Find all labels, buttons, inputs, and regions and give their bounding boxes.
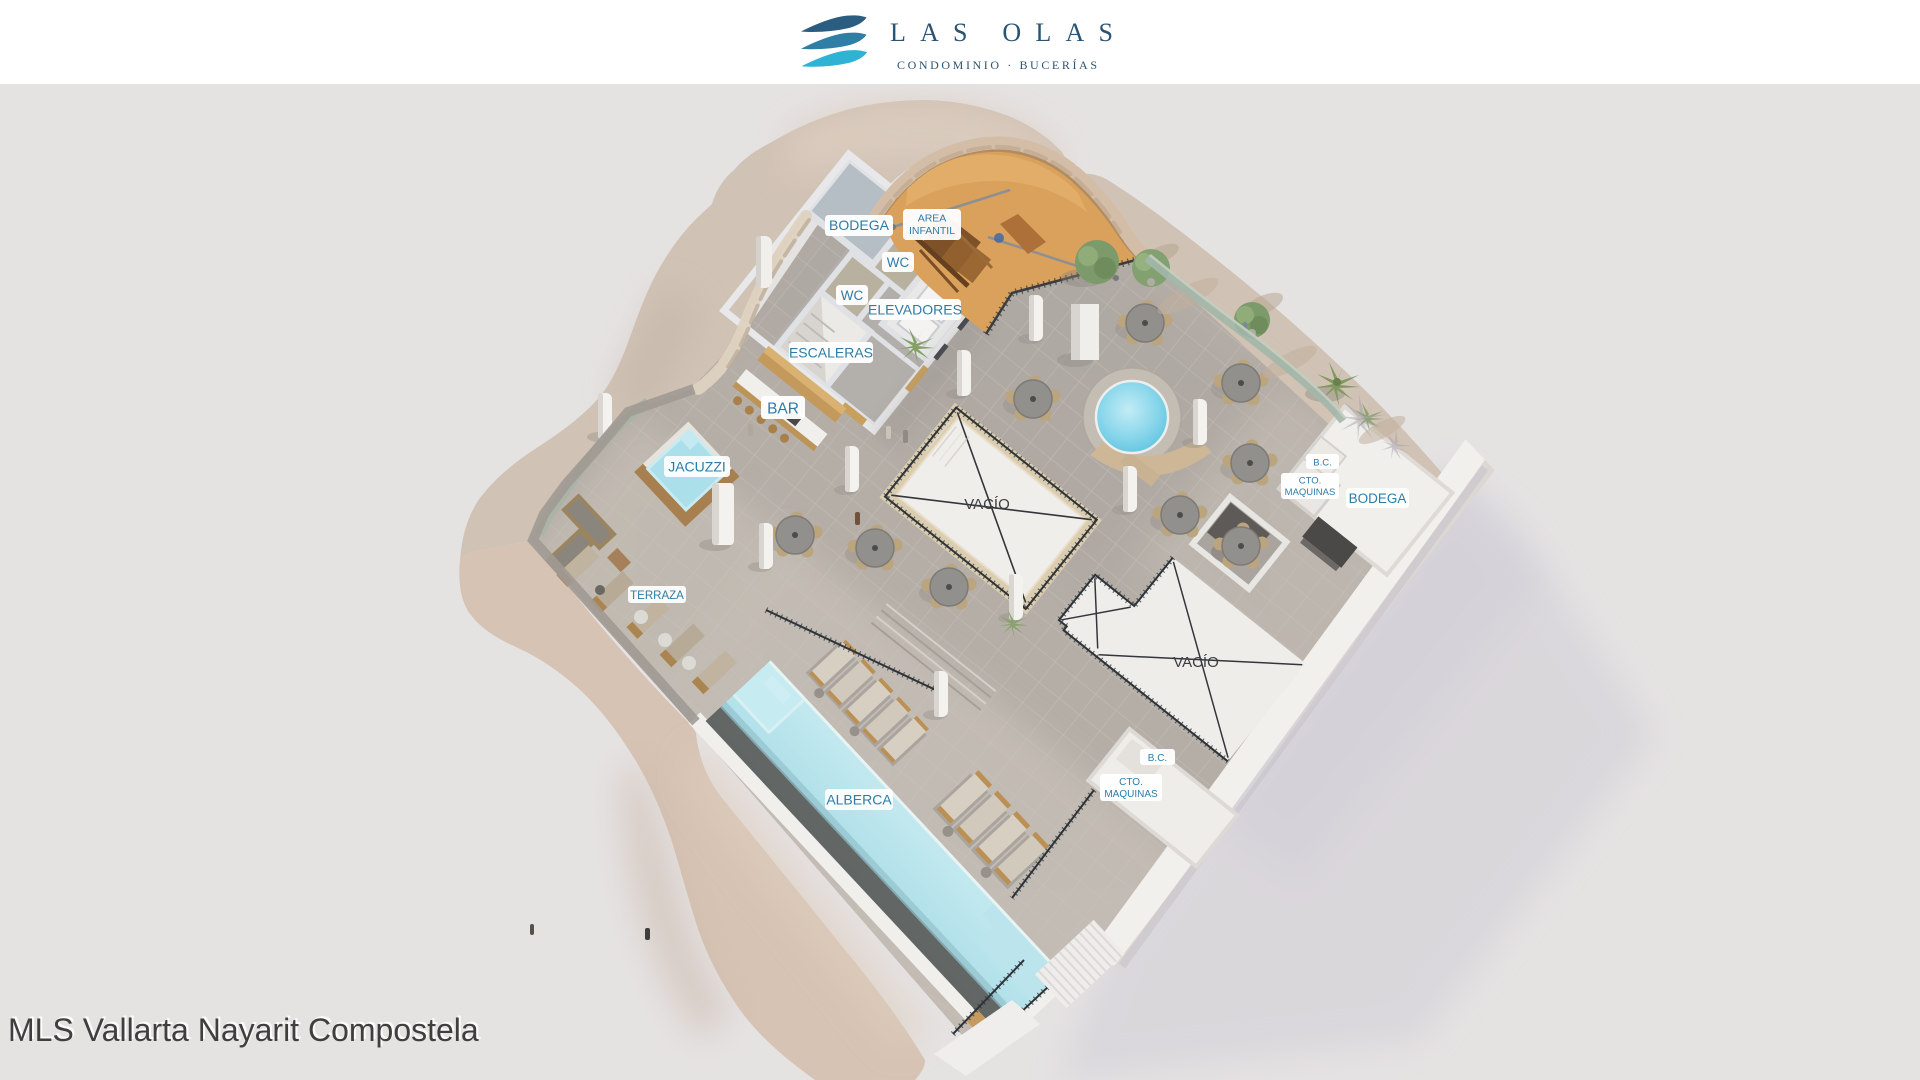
svg-text:VACÍO: VACÍO	[1173, 654, 1219, 671]
svg-text:WC: WC	[887, 255, 910, 270]
svg-text:TERRAZA: TERRAZA	[630, 590, 684, 602]
svg-text:WC: WC	[841, 288, 864, 303]
svg-text:INFANTIL: INFANTIL	[909, 225, 955, 237]
svg-text:ELEVADORES: ELEVADORES	[868, 302, 962, 318]
svg-text:CTO.: CTO.	[1119, 777, 1143, 788]
svg-text:BODEGA: BODEGA	[1349, 491, 1407, 506]
svg-text:VACÍO: VACÍO	[964, 496, 1010, 513]
svg-text:ALBERCA: ALBERCA	[826, 792, 892, 808]
svg-text:JACUZZI: JACUZZI	[668, 459, 726, 475]
svg-text:BODEGA: BODEGA	[829, 217, 890, 233]
svg-text:AREA: AREA	[918, 213, 947, 225]
svg-text:CTO.: CTO.	[1299, 476, 1322, 487]
svg-text:MAQUINAS: MAQUINAS	[1104, 789, 1158, 800]
svg-text:B.C.: B.C.	[1148, 753, 1167, 764]
svg-text:BAR: BAR	[767, 401, 799, 418]
svg-text:CONDOMINIO · BUCERÍAS: CONDOMINIO · BUCERÍAS	[897, 58, 1100, 72]
svg-text:MAQUINAS: MAQUINAS	[1285, 487, 1336, 498]
svg-text:LAS OLAS: LAS OLAS	[890, 18, 1127, 47]
svg-text:ESCALERAS: ESCALERAS	[789, 345, 873, 361]
svg-text:MLS Vallarta Nayarit Compostel: MLS Vallarta Nayarit Compostela	[8, 1012, 479, 1048]
svg-text:B.C.: B.C.	[1313, 458, 1331, 469]
